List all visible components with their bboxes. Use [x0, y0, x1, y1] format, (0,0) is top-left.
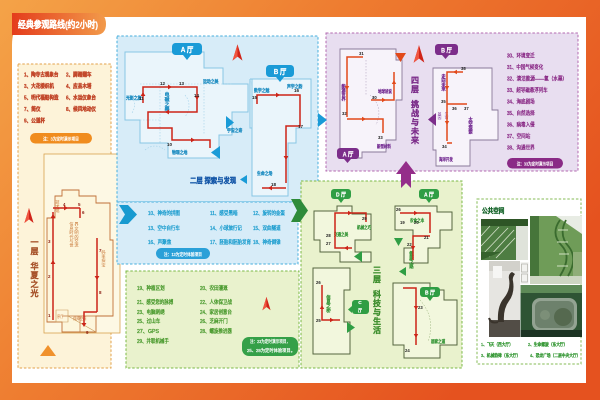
svg-text:能源世界: 能源世界	[341, 83, 347, 103]
svg-text:2、脚踏翻车: 2、脚踏翻车	[66, 71, 92, 79]
svg-text:注：33为定时演示项目: 注：33为定时演示项目	[517, 161, 554, 168]
svg-text:15、双曲隧道: 15、双曲隧道	[253, 224, 281, 232]
svg-text:35: 35	[441, 99, 446, 104]
svg-text:21: 21	[424, 235, 429, 240]
svg-text:34、海底剧场: 34、海底剧场	[507, 98, 535, 106]
svg-text:挑战与未来: 挑战与未来	[410, 99, 420, 145]
svg-text:厅: 厅	[358, 307, 362, 314]
svg-text:生命之场: 生命之场	[257, 170, 273, 177]
svg-text:3、机械韵律（东大厅）: 3、机械韵律（东大厅）	[481, 352, 520, 359]
svg-text:25: 25	[316, 318, 321, 323]
svg-text:38: 38	[461, 66, 466, 71]
svg-text:33、超导磁悬浮列车: 33、超导磁悬浮列车	[507, 86, 548, 94]
svg-text:29、并联机械手: 29、并联机械手	[137, 337, 169, 345]
svg-text:5、明代福船构造: 5、明代福船构造	[24, 94, 59, 102]
svg-text:30、环境变迁: 30、环境变迁	[507, 52, 535, 60]
svg-text:14: 14	[194, 93, 200, 98]
svg-text:24: 24	[405, 348, 410, 353]
svg-text:数学之魅: 数学之魅	[254, 87, 270, 94]
svg-text:33: 33	[378, 135, 383, 140]
svg-text:华夏之光: 华夏之光	[29, 261, 39, 298]
svg-text:注：23为定时演示项目，: 注：23为定时演示项目，	[250, 338, 290, 345]
svg-text:注：13为定时体验项目: 注：13为定时体验项目	[164, 251, 202, 258]
svg-text:序厅: 序厅	[57, 313, 63, 319]
svg-text:31: 31	[359, 51, 364, 56]
svg-text:16、声聚焦: 16、声聚焦	[148, 238, 172, 246]
svg-text:13、空中自行车: 13、空中自行车	[148, 224, 180, 232]
svg-text:22、人体保卫战: 22、人体保卫战	[200, 298, 232, 306]
svg-text:29: 29	[362, 216, 367, 221]
svg-text:9、公道杯: 9、公道杯	[24, 117, 45, 125]
svg-text:10: 10	[167, 142, 173, 147]
svg-text:37: 37	[464, 106, 469, 111]
svg-text:4、恐龙广场（二层中央大厅）: 4、恐龙广场（二层中央大厅）	[530, 352, 580, 359]
svg-text:36: 36	[452, 106, 457, 111]
svg-text:27、GPS: 27、GPS	[137, 329, 159, 335]
svg-text:注：3为定时演示项目: 注：3为定时演示项目	[43, 136, 79, 143]
svg-text:走向未来: 走向未来	[441, 73, 447, 93]
svg-text:18、神奇倒锥: 18、神奇倒锥	[253, 238, 281, 246]
svg-text:地球述说: 地球述说	[378, 88, 392, 95]
svg-text:基因: 基因	[437, 111, 442, 120]
svg-text:25、28为定时体验项目。: 25、28为定时体验项目。	[247, 347, 295, 354]
svg-text:运动之美: 运动之美	[203, 78, 219, 85]
svg-text:2、生命螺旋（东大厅）: 2、生命螺旋（东大厅）	[528, 341, 567, 348]
svg-text:11、感受黑暗: 11、感受黑暗	[210, 209, 238, 217]
svg-text:11: 11	[139, 96, 144, 101]
svg-text:B 厅: B 厅	[274, 68, 287, 76]
svg-text:居家之道: 居家之道	[431, 338, 446, 345]
svg-text:36、病毒入侵: 36、病毒入侵	[507, 121, 535, 129]
svg-text:宇宙之奇: 宇宙之奇	[227, 127, 243, 134]
svg-text:30: 30	[372, 95, 377, 100]
svg-text:35、自然选择: 35、自然选择	[507, 109, 535, 117]
svg-text:26: 26	[396, 207, 401, 212]
svg-text:31、中国气候变化: 31、中国气候变化	[507, 63, 544, 71]
svg-text:B 厅: B 厅	[441, 47, 452, 55]
svg-text:机械之巧: 机械之巧	[357, 224, 372, 231]
svg-text:A 厅: A 厅	[343, 151, 354, 159]
svg-text:界文明的交流: 界文明的交流	[74, 222, 80, 249]
svg-text:22: 22	[407, 242, 412, 247]
svg-text:A 厅: A 厅	[181, 46, 194, 54]
svg-text:26: 26	[316, 280, 321, 285]
svg-text:18: 18	[271, 182, 277, 187]
svg-text:四层: 四层	[411, 76, 420, 94]
svg-text:10、神奇的拼图: 10、神奇的拼图	[148, 209, 180, 217]
svg-text:D 厅: D 厅	[336, 191, 346, 199]
svg-text:16: 16	[294, 88, 300, 93]
svg-text:7、简仪: 7、简仪	[24, 105, 41, 113]
svg-text:38、沟通世界: 38、沟通世界	[507, 144, 535, 152]
svg-text:12: 12	[160, 81, 166, 86]
svg-text:二层 探索与发现: 二层 探索与发现	[190, 175, 237, 185]
svg-text:C: C	[358, 300, 362, 306]
svg-text:19、种植区划: 19、种植区划	[137, 284, 165, 292]
svg-text:28、螺旋推进器: 28、螺旋推进器	[200, 327, 232, 335]
svg-text:27: 27	[326, 241, 331, 246]
svg-text:15: 15	[252, 95, 258, 100]
svg-text:信息之桥: 信息之桥	[326, 294, 332, 314]
svg-text:A 厅: A 厅	[424, 191, 434, 199]
svg-text:海洋开发: 海洋开发	[439, 156, 453, 163]
svg-text:20: 20	[414, 220, 419, 225]
svg-text:1、陶寺古观象台: 1、陶寺古观象台	[24, 71, 59, 79]
svg-text:32: 32	[342, 111, 347, 116]
svg-text:19: 19	[400, 220, 405, 225]
svg-text:17、胚胎和胚胎发育: 17、胚胎和胚胎发育	[210, 238, 252, 246]
svg-text:6、水运仪象台: 6、水运仪象台	[66, 94, 96, 102]
svg-text:3、大花楼织机: 3、大花楼织机	[24, 82, 54, 90]
svg-text:技术馆: 技术馆	[55, 199, 61, 214]
svg-text:24、家居创意台: 24、家居创意台	[200, 308, 232, 316]
svg-text:新型材料: 新型材料	[377, 143, 391, 150]
svg-text:科技与生活: 科技与生活	[372, 289, 382, 335]
svg-text:1、飞天（西大厅）: 1、飞天（西大厅）	[481, 341, 513, 348]
svg-text:23、电脑刺绣: 23、电脑刺绣	[137, 308, 165, 316]
svg-text:交通之美: 交通之美	[334, 231, 349, 238]
svg-text:20、农田灌溉: 20、农田灌溉	[200, 284, 228, 292]
svg-text:23: 23	[418, 305, 423, 310]
svg-text:34: 34	[442, 144, 447, 149]
svg-text:B 厅: B 厅	[425, 289, 435, 297]
svg-text:28: 28	[326, 233, 331, 238]
svg-text:4、应县木塔: 4、应县木塔	[66, 82, 92, 90]
svg-text:21、感受您的脉搏: 21、感受您的脉搏	[137, 298, 174, 306]
svg-text:25、过山车: 25、过山车	[137, 317, 161, 325]
svg-text:32、清洁能源——氢（水幕）: 32、清洁能源——氢（水幕）	[507, 75, 567, 83]
svg-text:一层: 一层	[30, 238, 39, 256]
svg-text:经典参观路线(约2小时): 经典参观路线(约2小时)	[18, 19, 98, 31]
svg-text:太空探索: 太空探索	[468, 116, 474, 136]
svg-text:8、候风地动仪: 8、候风地动仪	[66, 105, 96, 113]
svg-text:17: 17	[298, 124, 304, 129]
svg-text:13: 13	[179, 81, 185, 86]
svg-text:26、芝麻开门: 26、芝麻开门	[200, 317, 228, 325]
svg-text:37、空间站: 37、空间站	[507, 132, 531, 140]
svg-text:三层: 三层	[373, 266, 382, 284]
svg-text:14、小球旅行记: 14、小球旅行记	[210, 224, 242, 232]
svg-text:12、旋转的金蛋: 12、旋转的金蛋	[253, 209, 285, 217]
svg-text:公共空间: 公共空间	[482, 206, 504, 215]
svg-text:物理之地: 物理之地	[172, 149, 188, 156]
